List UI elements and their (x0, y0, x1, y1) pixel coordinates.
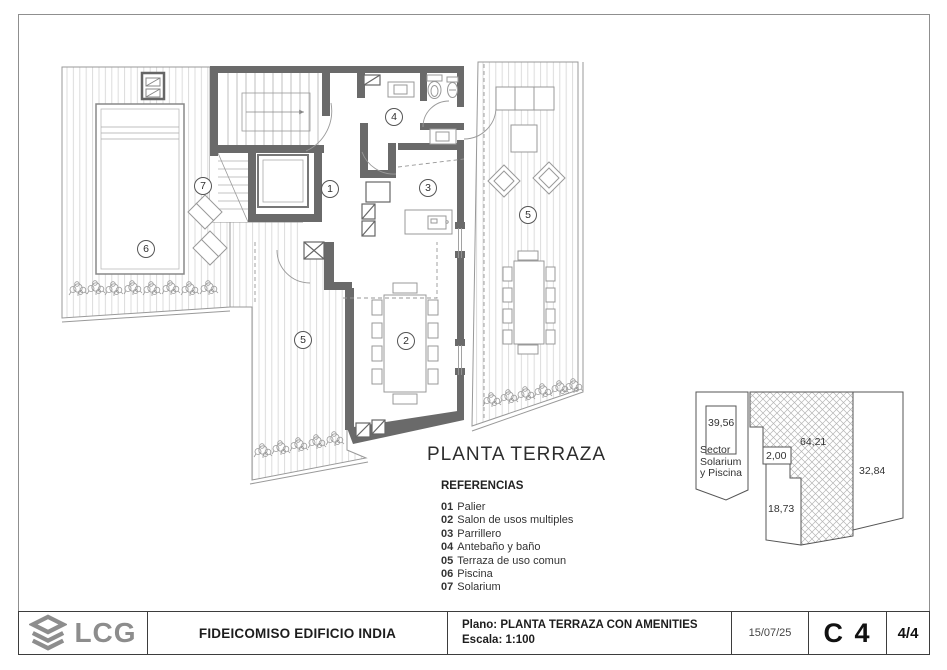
reference-item: 03Parrillero (441, 528, 606, 541)
elevator (258, 155, 308, 207)
title-block: LCG FIDEICOMISO EDIFICIO INDIA Plano: PL… (18, 611, 930, 655)
room-label-7: 7 (194, 177, 212, 195)
key-plan-sector-label: Sector Solarium y Piscina (700, 445, 742, 480)
key-area-32: 32,84 (859, 465, 885, 477)
key-area-64: 64,21 (800, 436, 826, 448)
escala-line: Escala: 1:100 (462, 633, 535, 648)
references-block: PLANTA TERRAZA REFERENCIAS 01Palier 02Sa… (427, 444, 606, 595)
reference-item: 07Solarium (441, 581, 606, 594)
plano-line: Plano: PLANTA TERRAZA CON AMENITIES (462, 618, 698, 633)
room-label-5-right: 5 (519, 206, 537, 224)
reference-item: 02Salon de usos multiples (441, 514, 606, 527)
plan-info-cell: Plano: PLANTA TERRAZA CON AMENITIES Esca… (447, 612, 731, 654)
key-area-18: 18,73 (768, 503, 794, 515)
drawing-sheet: { "plan": { "title": "PLANTA TERRAZA", "… (0, 0, 947, 670)
room-label-5-left: 5 (294, 331, 312, 349)
references-title: REFERENCIAS (441, 480, 606, 492)
date-cell: 15/07/25 (731, 612, 808, 654)
key-area-39: 39,56 (708, 417, 734, 429)
reference-item: 01Palier (441, 501, 606, 514)
room-label-1: 1 (321, 180, 339, 198)
room-label-3: 3 (419, 179, 437, 197)
reference-item: 06Piscina (441, 568, 606, 581)
reference-item: 04Antebaño y baño (441, 541, 606, 554)
room-label-2: 2 (397, 332, 415, 350)
project-name: FIDEICOMISO EDIFICIO INDIA (147, 612, 447, 654)
lcg-logo-icon (29, 613, 67, 653)
logo-text: LCG (74, 617, 136, 649)
room-label-4: 4 (385, 108, 403, 126)
parrillero-counter (405, 210, 452, 234)
skylight-box (142, 73, 164, 99)
key-area-2: 2,00 (766, 450, 786, 462)
sheet-code: C 4 (808, 612, 886, 654)
plan-title: PLANTA TERRAZA (427, 444, 606, 466)
reference-item: 05Terraza de uso comun (441, 555, 606, 568)
logo-cell: LCG (19, 612, 147, 654)
room-label-6: 6 (137, 240, 155, 258)
sheet-page: 4/4 (886, 612, 929, 654)
right-terrace-area (472, 62, 578, 426)
